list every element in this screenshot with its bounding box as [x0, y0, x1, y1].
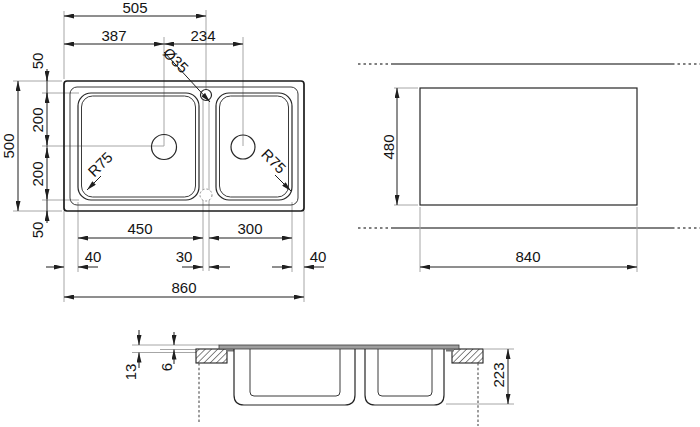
cutout-view: 480 840 — [358, 64, 700, 272]
tap-hole-diameter-label: Ø35 — [160, 44, 192, 76]
dim-505-label: 505 — [122, 0, 147, 16]
technical-drawing-page: 505 387 234 Ø35 50 200 200 50 500 R75 R7… — [0, 0, 700, 427]
rim-clip-right — [446, 349, 454, 352]
dim-387-label: 387 — [101, 27, 126, 44]
dim-223-label: 223 — [490, 362, 507, 387]
dim-50-bottom-label: 50 — [29, 222, 46, 239]
dim-500-label: 500 — [0, 133, 17, 158]
worktop-block-right — [452, 349, 483, 363]
radius-right-label: R75 — [258, 145, 289, 176]
overflow-hole — [200, 189, 212, 201]
bowl-right-section — [365, 349, 444, 405]
dim-30-label: 30 — [176, 248, 193, 265]
dim-40-left-label: 40 — [85, 248, 102, 265]
cutout-rect — [420, 88, 637, 205]
dim-450-label: 450 — [127, 220, 152, 237]
worktop-block-left — [196, 349, 227, 363]
dim-13-label: 13 — [122, 364, 139, 381]
rim-clip-left — [226, 349, 234, 352]
dim-200-lower-label: 200 — [29, 161, 46, 186]
rim-profile — [219, 345, 459, 352]
dim-200-upper-label: 200 — [29, 107, 46, 132]
radius-left-label: R75 — [84, 148, 115, 179]
sink-dimension-drawing: 505 387 234 Ø35 50 200 200 50 500 R75 R7… — [0, 0, 700, 427]
tap-hole — [201, 90, 212, 101]
bowl-left-section — [234, 349, 355, 405]
section-dimension-lines — [139, 330, 508, 404]
cutout-dimension-lines — [397, 88, 637, 267]
dim-300-label: 300 — [237, 220, 262, 237]
dim-860-label: 860 — [171, 279, 196, 296]
section-view: 13 6 223 — [122, 330, 514, 426]
dim-480-label: 480 — [380, 134, 397, 159]
dim-40-right-label: 40 — [310, 248, 327, 265]
plan-view: 505 387 234 Ø35 50 200 200 50 500 R75 R7… — [0, 0, 326, 302]
dim-234-label: 234 — [190, 27, 215, 44]
dim-6-label: 6 — [158, 363, 175, 371]
bowl-right — [216, 93, 292, 200]
dim-50-top-label: 50 — [29, 53, 46, 70]
cutout-extension-lines — [394, 88, 637, 272]
dim-840-label: 840 — [515, 248, 540, 265]
